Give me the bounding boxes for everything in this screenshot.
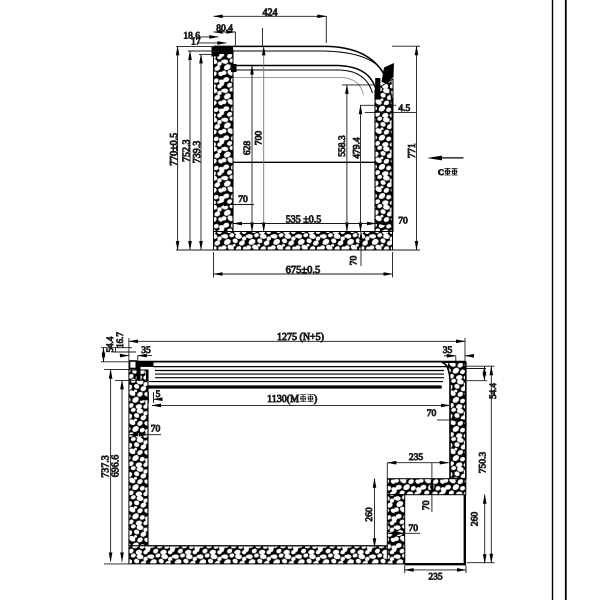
svg-text:16.7: 16.7 [115, 332, 125, 348]
svg-text:535 ±0.5: 535 ±0.5 [286, 215, 322, 226]
svg-text:54.4: 54.4 [105, 336, 115, 352]
svg-text:70: 70 [151, 425, 161, 435]
svg-text:80.4: 80.4 [216, 24, 233, 34]
svg-text:558.3: 558.3 [338, 135, 348, 157]
svg-text:479.4: 479.4 [353, 137, 363, 159]
svg-text:424: 424 [263, 7, 278, 18]
svg-text:771: 771 [407, 143, 418, 158]
svg-text:739.3: 739.3 [192, 141, 203, 164]
svg-text:70: 70 [427, 409, 437, 419]
svg-text:1130(M: 1130(M [267, 394, 299, 405]
svg-text:1275 (N+5): 1275 (N+5) [277, 332, 324, 343]
svg-text:260: 260 [471, 512, 481, 527]
svg-text:235: 235 [428, 573, 443, 583]
svg-text:35: 35 [141, 346, 151, 356]
svg-text:235: 235 [409, 453, 424, 463]
svg-text:4.5: 4.5 [398, 104, 410, 114]
svg-text:70: 70 [422, 500, 432, 510]
svg-text:70: 70 [409, 524, 419, 534]
svg-text:35: 35 [443, 346, 453, 356]
svg-text:70: 70 [350, 256, 360, 266]
svg-text:70: 70 [238, 195, 248, 205]
svg-text:70: 70 [398, 216, 408, 226]
svg-text:750.3: 750.3 [479, 452, 489, 474]
svg-text:700: 700 [254, 131, 264, 146]
svg-text:54.4: 54.4 [488, 383, 498, 399]
svg-text:): ) [314, 394, 317, 405]
svg-text:675±0.5: 675±0.5 [286, 265, 321, 276]
svg-text:696.6: 696.6 [111, 455, 122, 478]
svg-text:770±0.5: 770±0.5 [169, 133, 180, 166]
svg-text:260: 260 [365, 507, 375, 522]
svg-text:C: C [438, 167, 444, 177]
svg-text:5: 5 [156, 390, 161, 400]
svg-text:628: 628 [243, 141, 253, 156]
